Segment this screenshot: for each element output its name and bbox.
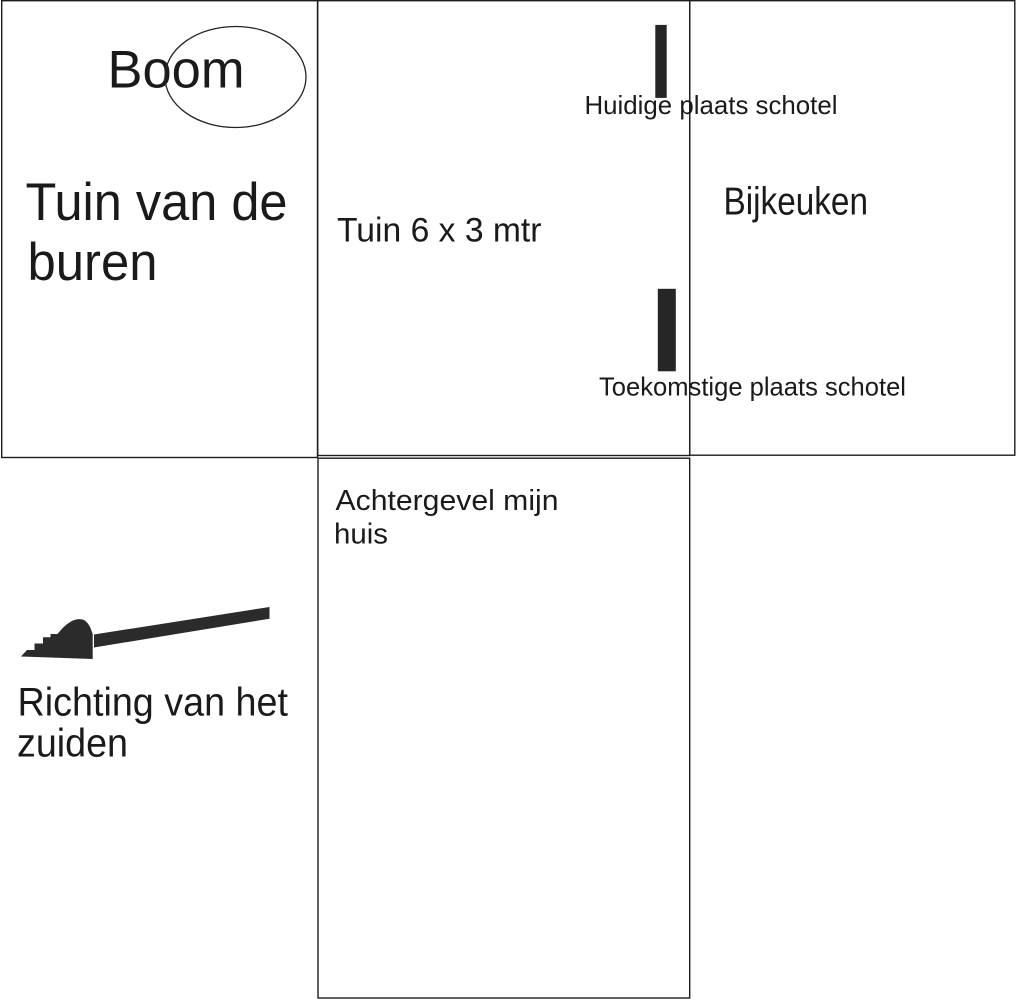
svg-text:zuiden: zuiden (17, 721, 128, 765)
svg-text:Richting van het: Richting van het (18, 681, 289, 725)
svg-text:Achtergevel mijn: Achtergevel mijn (336, 485, 559, 517)
svg-text:Tuin van de: Tuin van de (26, 173, 288, 232)
svg-text:huis: huis (334, 518, 388, 550)
svg-text:Toekomstige plaats schotel: Toekomstige plaats schotel (599, 374, 906, 402)
svg-text:Huidige plaats schotel: Huidige plaats schotel (585, 92, 838, 120)
svg-text:Tuin 6 x 3 mtr: Tuin 6 x 3 mtr (337, 211, 542, 249)
svg-text:buren: buren (28, 233, 158, 292)
svg-text:Bijkeuken: Bijkeuken (724, 180, 869, 223)
